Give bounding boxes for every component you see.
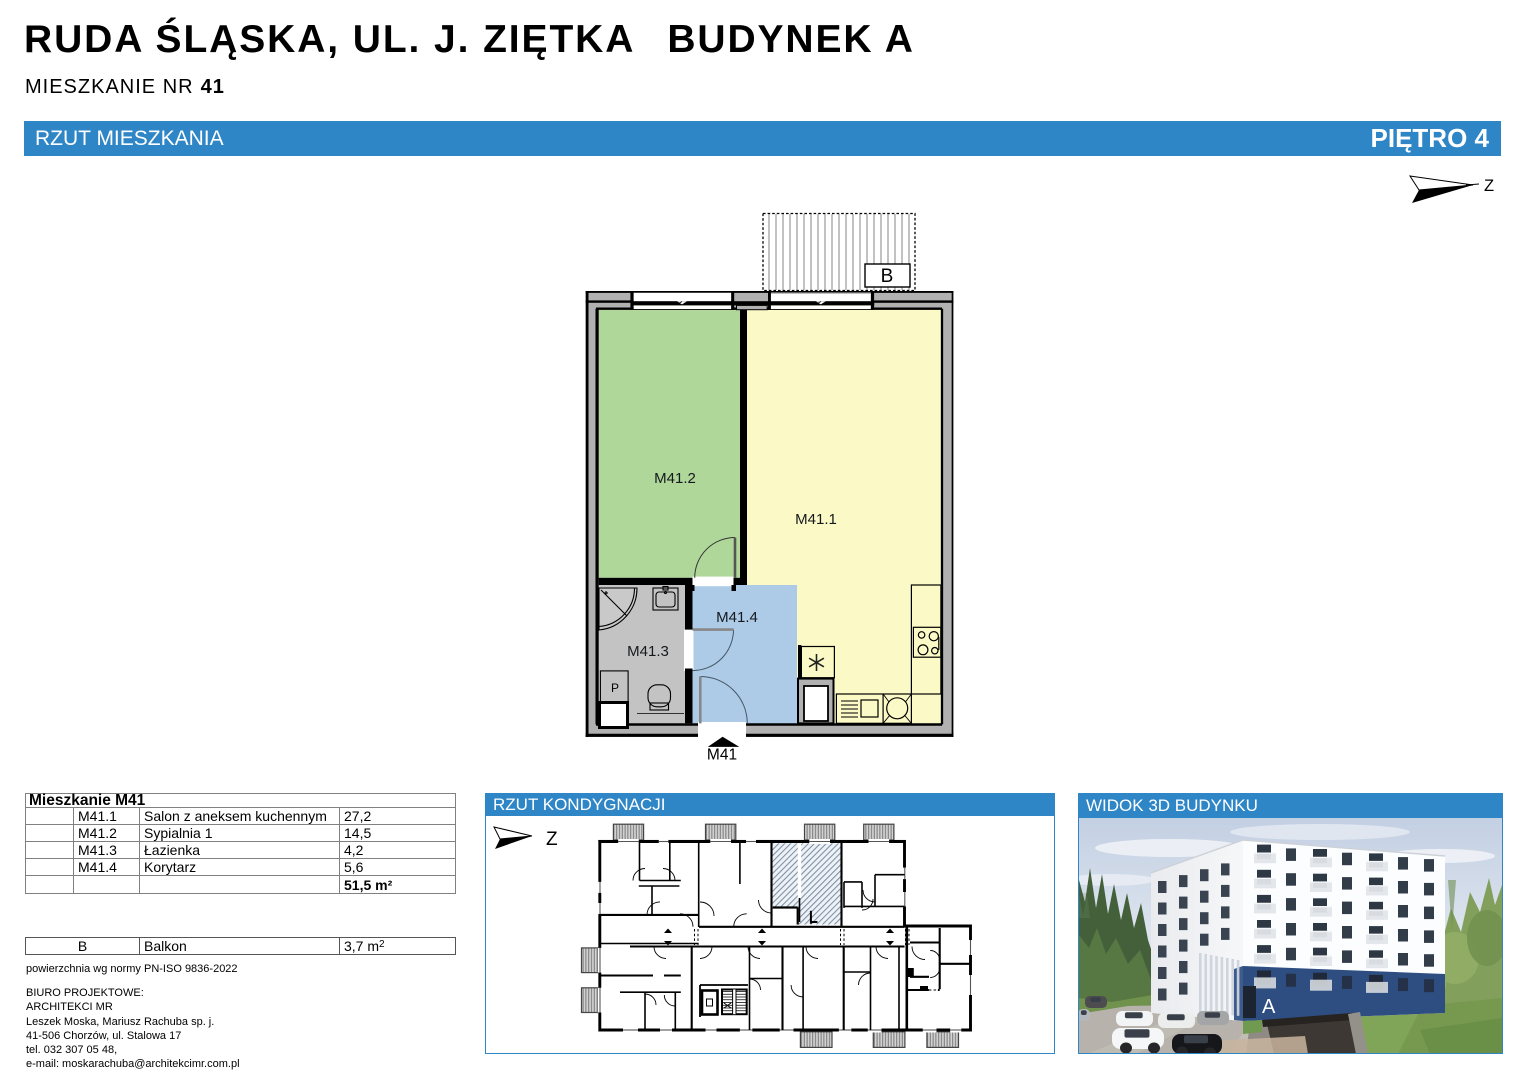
svg-text:M41.1: M41.1 <box>795 511 837 528</box>
svg-text:P: P <box>611 681 619 695</box>
svg-text:A: A <box>1262 996 1276 1018</box>
svg-text:M41: M41 <box>707 747 737 764</box>
svg-text:M41.3: M41.3 <box>627 643 669 660</box>
svg-text:B: B <box>881 266 894 287</box>
svg-text:Z: Z <box>546 829 558 850</box>
svg-text:M41.2: M41.2 <box>654 470 696 487</box>
svg-text:M41.4: M41.4 <box>716 609 758 626</box>
svg-text:Z: Z <box>1484 177 1494 195</box>
